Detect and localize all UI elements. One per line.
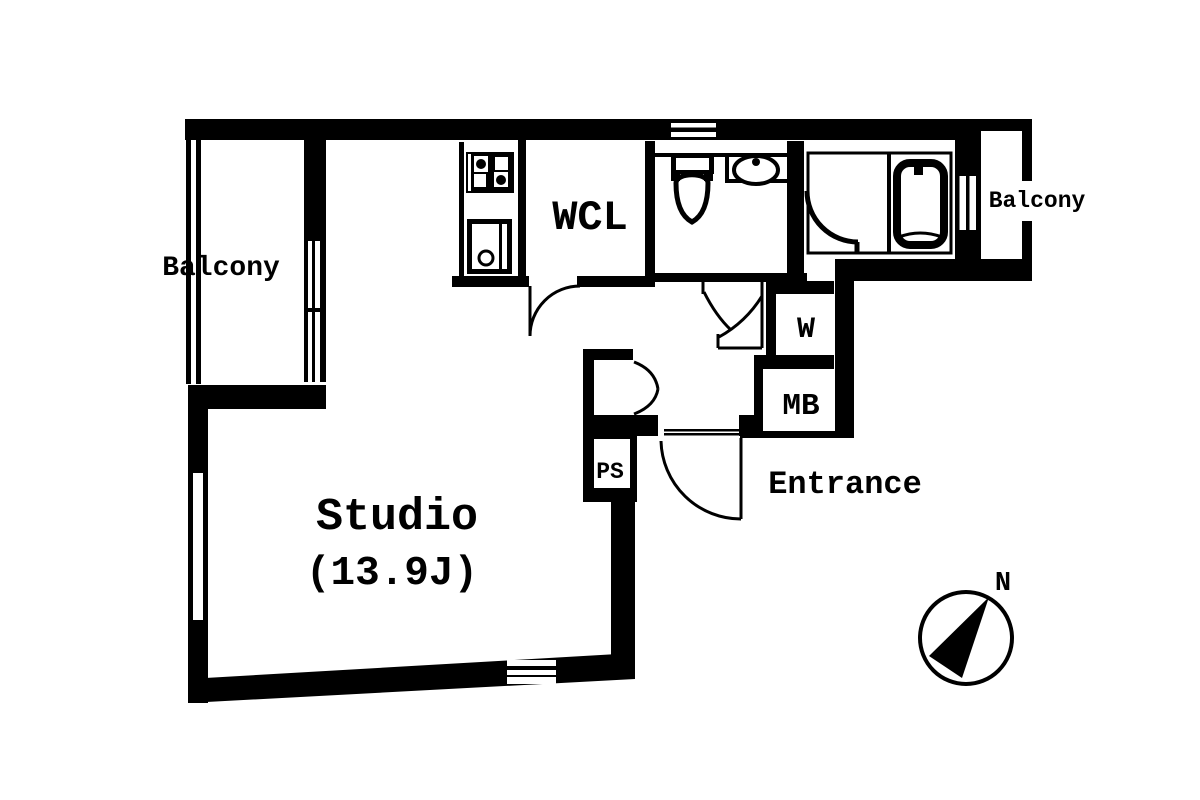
svg-text:MB: MB	[782, 389, 819, 424]
svg-text:Studio: Studio	[316, 492, 478, 543]
svg-text:PS: PS	[596, 459, 624, 485]
svg-text:W: W	[797, 313, 815, 347]
svg-text:Balcony: Balcony	[989, 188, 1086, 214]
svg-text:WCL: WCL	[552, 194, 628, 242]
svg-text:Balcony: Balcony	[162, 253, 280, 284]
svg-text:N: N	[995, 569, 1011, 599]
svg-text:Entrance: Entrance	[768, 466, 922, 503]
svg-text:(13.9J): (13.9J)	[306, 551, 478, 597]
